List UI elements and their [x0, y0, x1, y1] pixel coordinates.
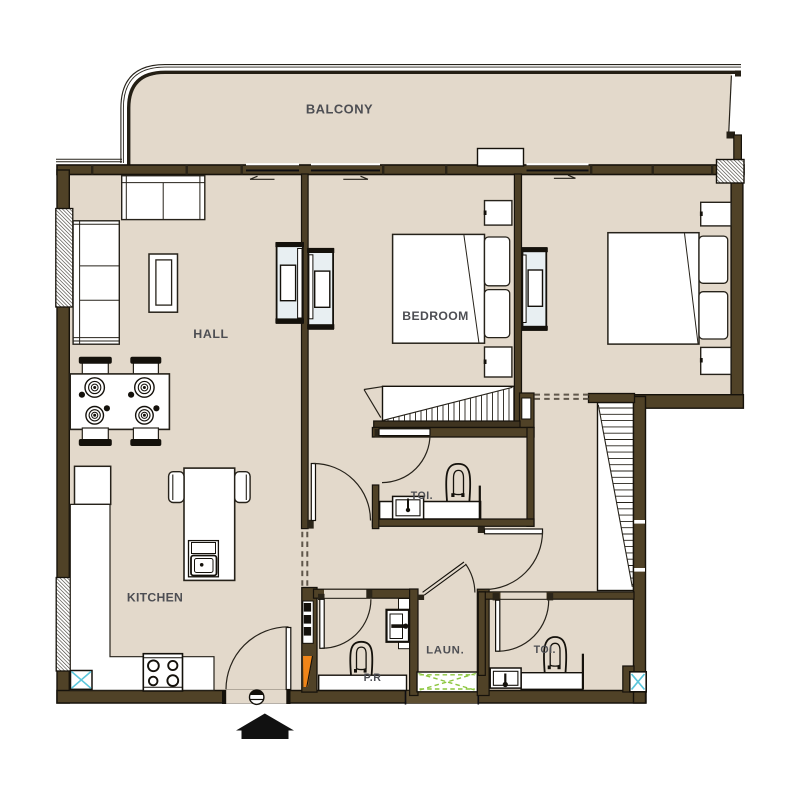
svg-text:BEDROOM: BEDROOM: [402, 309, 468, 323]
svg-text:HALL: HALL: [193, 327, 228, 341]
svg-text:BALCONY: BALCONY: [306, 102, 373, 117]
svg-text:KITCHEN: KITCHEN: [127, 591, 183, 605]
svg-text:TOI.: TOI.: [411, 490, 433, 502]
svg-text:LAUN.: LAUN.: [426, 645, 464, 657]
svg-text:P.R: P.R: [364, 672, 382, 684]
svg-text:TOI.: TOI.: [534, 644, 556, 656]
